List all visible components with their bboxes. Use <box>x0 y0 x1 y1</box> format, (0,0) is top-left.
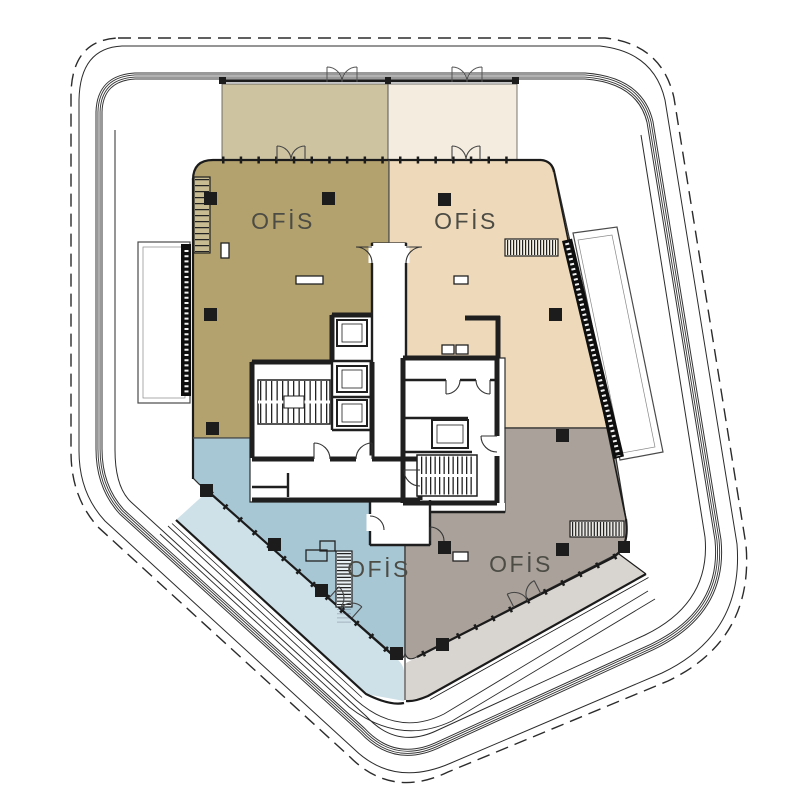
railing-post <box>512 77 519 84</box>
zone-label-office-northwest: OFİS <box>251 208 315 234</box>
column <box>315 584 328 597</box>
furniture-item <box>454 276 468 284</box>
furniture-item <box>221 243 229 258</box>
zone-label-office-southeast: OFİS <box>489 551 553 577</box>
furniture-item <box>442 345 454 354</box>
column <box>549 308 562 321</box>
floor-plan-page: OFİS OFİS OFİS OFİS <box>0 0 800 812</box>
core-main-stair <box>258 380 330 424</box>
elevator-1-cab <box>342 324 362 342</box>
column <box>556 543 569 556</box>
column <box>618 541 630 553</box>
column <box>322 192 335 205</box>
stair-southeast <box>570 521 624 537</box>
south-core-vestibule <box>370 500 430 545</box>
column <box>436 638 449 651</box>
zone-label-office-southwest: OFİS <box>347 556 411 582</box>
railing-post <box>385 77 391 84</box>
stair-northwest <box>194 177 210 253</box>
column <box>206 422 219 435</box>
column <box>556 429 569 442</box>
column <box>204 192 217 205</box>
furniture-item <box>453 552 468 561</box>
furniture-item <box>456 345 468 354</box>
furniture-item <box>296 276 323 284</box>
core-service-stair <box>417 455 477 496</box>
zone-label-office-northeast: OFİS <box>434 208 498 234</box>
railing-post <box>219 77 226 84</box>
column <box>268 538 281 551</box>
column <box>438 541 451 554</box>
column <box>204 308 217 321</box>
service-room <box>252 458 420 502</box>
column <box>438 193 451 206</box>
elevator-3-cab <box>342 404 362 422</box>
north-terraces <box>219 67 519 160</box>
elevator-2-cab <box>342 370 362 388</box>
floor-plan-drawing: OFİS OFİS OFİS OFİS <box>0 0 800 812</box>
service-elevator-cab <box>437 425 463 443</box>
column <box>200 484 213 497</box>
stair-northeast <box>505 239 558 256</box>
column <box>390 647 403 660</box>
